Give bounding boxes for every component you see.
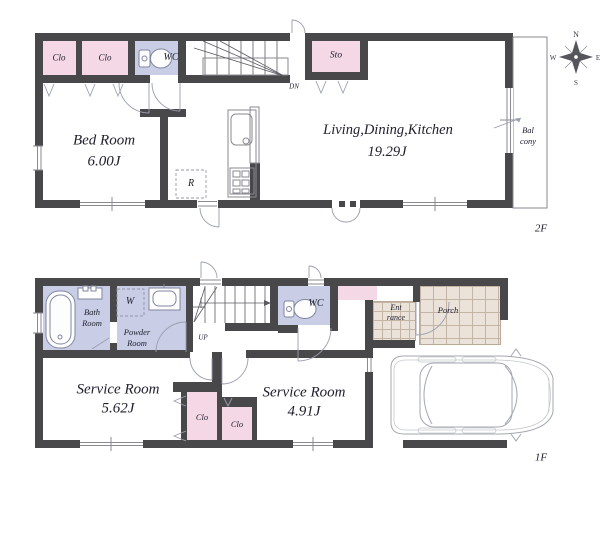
bathroom-label-line2: Room [82,319,102,328]
bathroom-label-line1: Bath [84,308,100,317]
stairs-up-label: UP [198,335,207,342]
wall-segment [360,200,403,208]
wall-segment [413,286,420,302]
door-swing [200,262,222,286]
compass-south-label: S [574,79,578,87]
washer-label: W [126,297,134,307]
balcony-label-line1: Bal [522,126,534,135]
compass-east-label: E [596,54,600,62]
wall-segment [270,286,278,331]
wall-segment [181,392,187,440]
wall-segment [178,41,186,83]
window [33,146,43,170]
service-room-2-name: Service Room [263,386,346,401]
hanger-marks [44,81,348,96]
wall-segment [505,153,513,200]
wall-segment [128,41,135,75]
window [80,437,143,451]
wall-segment [35,278,200,286]
wall-segment [43,75,150,83]
powder-room-label-line1: Powder [124,328,150,337]
window [293,437,333,451]
closet-1f-1-label: Clo [196,413,208,422]
window [33,313,43,333]
bedroom-size: 6.00J [88,155,121,170]
wall-segment [467,200,513,208]
wc-1f-label: WC [309,299,324,309]
door-swing [292,20,305,33]
porch-label: Porch [438,306,458,315]
wall-segment [160,117,168,200]
wall-segment [35,286,43,313]
double-door-swing [332,200,360,222]
closet-2f-1-label: Clo [52,54,65,63]
stairs-down-label: DN [289,84,299,91]
door-swing [197,200,219,227]
car-icon [391,349,553,441]
wall-segment [278,325,298,333]
wall-segment [35,41,43,146]
entrance-label-line2: rance [387,314,405,322]
service-room-2-size: 4.91J [288,405,321,420]
storage-label: Sto [330,51,342,61]
bedroom-name: Bed Room [73,134,135,149]
wall-segment [145,200,197,208]
balcony-label-line2: cony [520,137,536,146]
closet-2f-2-label: Clo [98,54,111,63]
wall-segment [365,340,415,348]
ldk-size: 19.29J [367,145,406,160]
ldk-name: Living,Dining,Kitchen [323,123,453,138]
compass-rose: N E S W [550,30,600,87]
door-swing [222,358,248,384]
wall-segment [252,407,257,440]
window [80,197,145,211]
compass-north-label: N [573,30,579,39]
wall-segment [140,109,186,117]
wall-segment [330,286,338,331]
wall-segment [500,286,508,320]
wall-segment [35,333,43,448]
entrance-label-line1: Ent [390,304,401,312]
wall-segment [324,278,508,286]
door-swing [152,83,180,111]
compass-west-label: W [550,54,557,62]
porch-tiles [420,286,500,344]
wall-segment [225,323,270,331]
wall-segment [43,350,190,358]
wall-segment [173,382,220,392]
wall-segment [35,33,290,41]
wall-segment [305,72,368,80]
wall-segment [218,200,332,208]
wall-segment [250,163,260,202]
window [365,358,373,372]
wall-segment [143,440,293,448]
wc-2f-label: WC [164,53,179,63]
wall-segment [186,75,290,83]
wall-segment [246,350,367,358]
stairs-1f [193,286,271,323]
wall-segment [186,286,193,352]
floor-plan-canvas: N E S W [0,0,600,550]
floor1-label: 1F [535,453,547,464]
stairs-2f [194,41,288,76]
floor2-label: 2F [535,224,547,235]
wall-segment [218,397,257,407]
wall-segment [360,41,368,80]
door-swing [190,358,212,380]
balcony-sliding-door [494,88,521,153]
wall-segment [35,440,80,448]
wall-segment [35,200,80,208]
service-room-1-size: 5.62J [102,402,135,417]
wall-segment [222,278,308,286]
wall-segment [110,286,117,322]
wall-segment [305,33,513,41]
wall-segment [76,41,82,75]
powder-room-label-line2: Room [127,339,147,348]
refrigerator-label: R [188,179,194,189]
balcony-outline [513,37,547,208]
wall-segment [403,440,507,448]
window [403,197,467,211]
door-swing [308,266,324,286]
wall-segment [505,41,513,88]
wall-segment [365,372,373,448]
closet-1f-2-label: Clo [231,420,243,429]
service-room-1-name: Service Room [77,383,160,398]
